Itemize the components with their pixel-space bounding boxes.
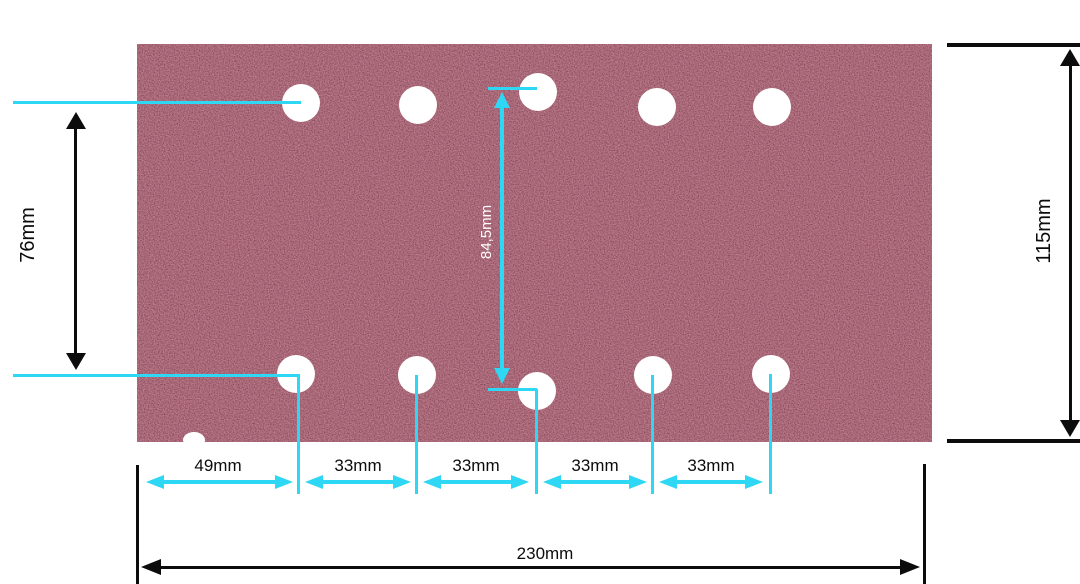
- sheet-hole-top-3: [519, 73, 557, 111]
- sheet-hole-top-5: [753, 88, 791, 126]
- dim-left-height-line: [74, 126, 77, 355]
- extension-line-hole-1: [297, 374, 300, 494]
- extension-line-hole-4: [651, 375, 654, 494]
- dim-total-width-ext-left: [136, 465, 139, 584]
- dim-right-height-line: [1069, 63, 1072, 422]
- dim-segment-3-label: 33mm: [436, 455, 516, 477]
- sheet-hole-top-4: [638, 88, 676, 126]
- dim-segment-5-arrow-right-icon: [745, 475, 763, 489]
- dim-segment-1-label: 49mm: [178, 455, 258, 477]
- dim-segment-5-line: [673, 480, 749, 484]
- dim-left-height-label: 76mm: [17, 190, 39, 280]
- dim-right-height-label: 115mm: [1033, 186, 1055, 276]
- dim-center-height-tick-bottom: [488, 388, 537, 391]
- top-hole-reference-line: [13, 101, 301, 104]
- dim-right-height-arrow-up-icon: [1060, 49, 1080, 66]
- dim-total-width-arrow-right-icon: [900, 559, 920, 575]
- dim-total-width-line: [159, 566, 902, 569]
- extension-line-hole-2: [415, 375, 418, 494]
- dim-center-height-label: 84,5mm: [476, 187, 498, 277]
- dim-center-height-line: [500, 106, 504, 370]
- extension-line-hole-5: [769, 374, 772, 494]
- dim-right-height-arrow-down-icon: [1060, 420, 1080, 437]
- dim-center-height-arrow-down-icon: [494, 368, 510, 384]
- dim-segment-2-arrow-right-icon: [393, 475, 411, 489]
- bottom-hole-reference-line: [13, 374, 299, 377]
- dim-segment-4-line: [557, 480, 633, 484]
- dim-segment-2-label: 33mm: [318, 455, 398, 477]
- dim-right-height-tick-top: [947, 43, 1080, 47]
- dim-segment-4-arrow-right-icon: [629, 475, 647, 489]
- dim-total-width-arrow-left-icon: [141, 559, 161, 575]
- sheet-hole-top-2: [399, 86, 437, 124]
- dim-center-height-tick-top: [488, 87, 537, 90]
- dim-segment-4-label: 33mm: [555, 455, 635, 477]
- dim-segment-5-arrow-left-icon: [659, 475, 677, 489]
- dim-segment-5-label: 33mm: [671, 455, 751, 477]
- dim-center-height-arrow-up-icon: [494, 92, 510, 108]
- dim-left-height-arrow-down-icon: [66, 353, 86, 370]
- dim-total-width-label: 230mm: [495, 543, 595, 565]
- dimension-diagram: 84,5mm 49mm 33mm 33mm 33mm 33mm 76mm 115…: [0, 0, 1080, 584]
- dim-segment-2-line: [319, 480, 397, 484]
- extension-line-hole-3: [535, 389, 538, 494]
- dim-segment-4-arrow-left-icon: [543, 475, 561, 489]
- dim-segment-2-arrow-left-icon: [305, 475, 323, 489]
- dim-segment-1-arrow-right-icon: [275, 475, 293, 489]
- dim-segment-1-line: [160, 480, 279, 484]
- dim-right-height-tick-bottom: [947, 439, 1080, 443]
- dim-segment-3-arrow-left-icon: [423, 475, 441, 489]
- dim-segment-3-line: [437, 480, 515, 484]
- dim-segment-3-arrow-right-icon: [511, 475, 529, 489]
- dim-left-height-arrow-up-icon: [66, 112, 86, 129]
- dim-total-width-ext-right: [923, 464, 926, 584]
- dim-segment-1-arrow-left-icon: [146, 475, 164, 489]
